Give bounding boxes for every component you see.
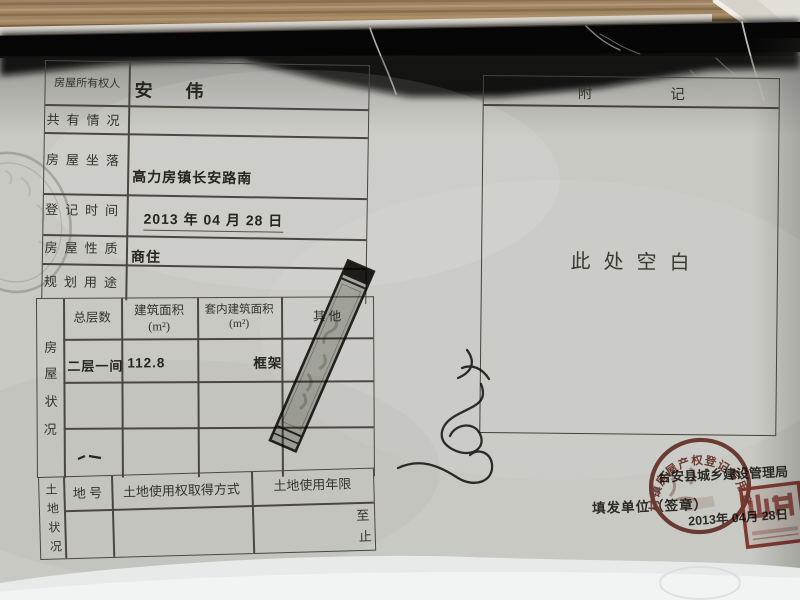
handwriting-scribble <box>398 350 492 483</box>
rect-red-seal <box>741 483 800 548</box>
small-pen-mark <box>78 456 101 459</box>
pen-object <box>270 260 374 451</box>
photographed-certificate-page: 房屋所有权人 共有情况 房屋坐落 登记时间 房屋性质 规划用途 安 伟 高力房镇… <box>0 0 800 600</box>
overlay-marks: 村镇房屋产权登记专用章 <box>0 0 800 600</box>
round-red-seal: 村镇房屋产权登记专用章 <box>645 434 755 539</box>
